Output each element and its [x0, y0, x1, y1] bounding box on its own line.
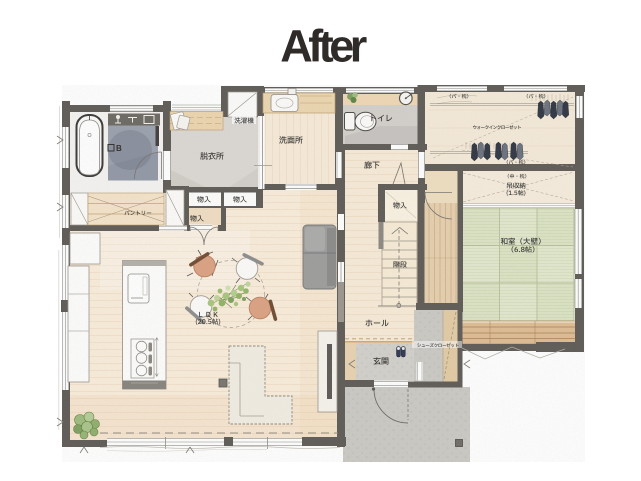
svg-text:After: After [280, 21, 366, 72]
